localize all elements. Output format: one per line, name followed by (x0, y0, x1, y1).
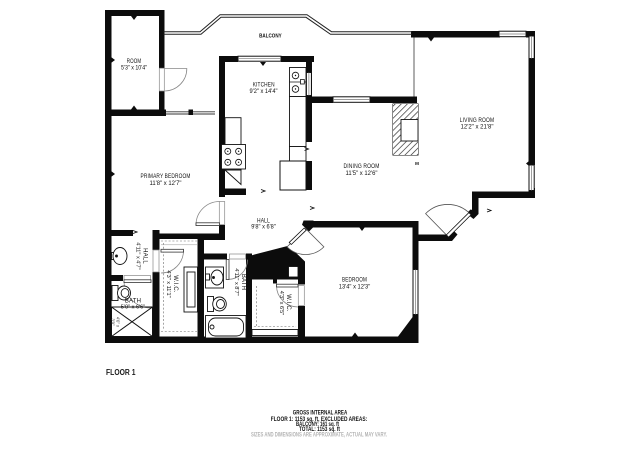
svg-text:GROSS INTERNAL AREA: GROSS INTERNAL AREA (293, 411, 348, 417)
svg-text:FLOOR 1: FLOOR 1 (106, 367, 136, 377)
svg-text:SIZES AND DIMENSIONS ARE APPRO: SIZES AND DIMENSIONS ARE APPROXIMATE, AC… (251, 433, 387, 439)
